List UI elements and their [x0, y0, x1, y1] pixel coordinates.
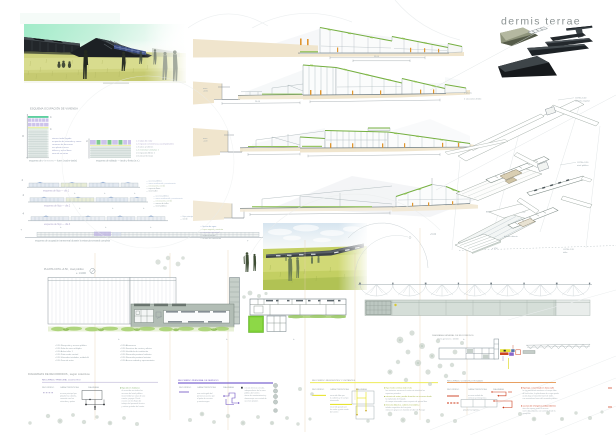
svg-text:norte del conjunto, con contro: norte del conjunto, con control desde la [523, 410, 557, 413]
svg-text:■ flujo medio continuo todo el: ■ flujo medio continuo todo el día [384, 387, 413, 390]
svg-text:O: O [22, 134, 24, 138]
svg-text:la cubierta y el campo: la cubierta y el campo [330, 397, 348, 400]
svg-text:e 1/50: e 1/50 [492, 248, 498, 250]
svg-text:planta general e. 1/2000: planta general e. 1/2000 [437, 338, 459, 341]
svg-text:uso restringido del: uso restringido del [197, 392, 213, 395]
svg-text:área de espera junto al acceso: área de espera junto al acceso [523, 407, 549, 410]
svg-text:■ itinerario didáctico, cubier: ■ itinerario didáctico, cubierta transit… [384, 403, 419, 406]
svg-text:DIAGRAMA: DIAGRAMA [493, 388, 504, 391]
svg-text:e. 1/1000: e. 1/1000 [76, 272, 87, 275]
svg-text:+: + [293, 337, 295, 341]
svg-text:+3.50 Aulas taller 1: +3.50 Aulas taller 1 [55, 350, 74, 353]
svg-text:uso planta tercera: uso planta tercera [52, 146, 69, 149]
svg-text:taller: taller [563, 251, 568, 254]
svg-text:recorrido libre por: recorrido libre por [330, 394, 345, 397]
svg-text:esquema de ocupación transvers: esquema de ocupación transversal durante… [35, 239, 111, 242]
svg-text:zona de servicios: zona de servicios [52, 152, 68, 155]
svg-text:COTA -1.20: COTA -1.20 [563, 248, 575, 251]
svg-text:taludes vegetales del conjunto: taludes vegetales del conjunto [386, 406, 411, 409]
svg-text:■ flujo bajo, concentrado en h: ■ flujo bajo, concentrado en horas valle [521, 387, 554, 390]
svg-text:el recorrido une todos los: el recorrido une todos los [122, 389, 143, 392]
svg-text:s.6 zonas técnicas: s.6 zonas técnicas [136, 155, 153, 158]
svg-text:el campo intermedio como espac: el campo intermedio como espacio de pase… [386, 400, 428, 403]
svg-text:RECORRIDO: RECORRIDO [179, 387, 192, 389]
svg-text:s.5 espacios libres 1: s.5 espacios libres 1 [136, 152, 156, 155]
svg-text:esquema de flujo — día 2: esquema de flujo — día 2 [44, 205, 71, 207]
svg-text:los visitantes recorren el cen: los visitantes recorren el centro sin in… [386, 389, 426, 392]
svg-text:CARACTERÍSTICAS: CARACTERÍSTICAS [197, 386, 216, 389]
svg-text:— muros de contención: — muros de contención [200, 237, 221, 240]
svg-text:RECORRIDO PRINCIPAL COLECTIVO: RECORRIDO PRINCIPAL COLECTIVO [42, 379, 81, 382]
svg-text:CARACTERÍSTICAS: CARACTERÍSTICAS [468, 388, 487, 391]
svg-text:servicio y emergencia: servicio y emergencia [468, 397, 487, 400]
svg-text:PLANTA COTA +3.50 , nivel públ: PLANTA COTA +3.50 , nivel público [44, 268, 84, 271]
svg-text:+: + [463, 337, 465, 341]
svg-text:RECORRIDO RESIDENTES Y VISITAN: RECORRIDO RESIDENTES Y VISITANTES [312, 379, 356, 382]
svg-text:la vía perimetral mantiene el: la vía perimetral mantiene el campo libr… [523, 389, 557, 392]
svg-text:s.3 aulas y talleres: s.3 aulas y talleres [136, 146, 153, 149]
svg-text:RECORRIDO: RECORRIDO [42, 387, 55, 389]
svg-text:+3.50 Recorrido peatonal cub: +3.50 Recorrido peatonal cubierto [120, 353, 152, 356]
svg-text:DIAGRAMA: DIAGRAMA [356, 388, 367, 391]
svg-text:cubierta vegetal: cubierta vegetal [575, 100, 590, 103]
svg-text:COTA +3.50: COTA +3.50 [577, 161, 589, 164]
svg-text:+3.50 Servicios de cocina y: +3.50 Servicios de cocina y oficios [120, 347, 152, 350]
svg-text:personal, acceso por: personal, acceso por [197, 395, 215, 398]
svg-text:de vehículos; la plataforma de: de vehículos; la plataforma de carga que… [523, 392, 560, 395]
svg-text:y visitas guiadas del centro: y visitas guiadas del centro [122, 405, 145, 408]
svg-text:RECORRIDO: RECORRIDO [312, 389, 325, 391]
svg-text:independiente de la zona: independiente de la zona [245, 389, 267, 392]
svg-text:38.00: 38.00 [374, 56, 380, 58]
svg-text:COTA +6.00: COTA +6.00 [575, 97, 587, 100]
svg-text:— terreno natural: — terreno natural [200, 234, 216, 237]
svg-text:circuito técnico cerrado,: circuito técnico cerrado, [245, 386, 265, 389]
svg-text:CARACTERÍSTICAS: CARACTERÍSTICAS [330, 388, 349, 391]
svg-text:visitas en grupo con monitor a: visitas en grupo con monitor al taller d… [386, 409, 426, 412]
svg-text:— lámina de agua: — lámina de agua [200, 226, 217, 228]
svg-text:accesos propios: accesos propios [245, 399, 259, 402]
svg-text:1 planta: 1 planta [464, 92, 473, 95]
svg-text:trabajo del personal técnico: trabajo del personal técnico [122, 402, 145, 405]
svg-text:plataforma logística: plataforma logística [463, 408, 480, 411]
svg-text:+3.50 Acceso rodado y aparca: +3.50 Acceso rodado y aparcamiento [120, 359, 155, 362]
svg-text:■ accesos de emergencia indepe: ■ accesos de emergencia independientes [521, 404, 556, 407]
svg-text:almacenaje con control de: almacenaje con control de [245, 397, 267, 400]
svg-text:y montacargas: y montacargas [197, 400, 209, 403]
svg-text:— nivel taller: — nivel taller [146, 190, 158, 193]
svg-text:+3.50 Sala de usos múltiples: +3.50 Sala de usos múltiples [55, 347, 82, 350]
svg-text:esquema de sábado — tarde y fi: esquema de sábado — tarde y fiesta (s.e.… [96, 160, 140, 163]
svg-text:+3.50 Patio verde central: +3.50 Patio verde central [55, 353, 79, 356]
svg-text:viviendas y patios: viviendas y patios [60, 400, 75, 403]
svg-text:DIAGRAMA: DIAGRAMA [88, 386, 99, 389]
svg-text:— capa vegetal y sustrato: — capa vegetal y sustrato [200, 228, 224, 231]
svg-text:nivel público: nivel público [577, 165, 589, 167]
svg-text:común y apoyo. Prevé: común y apoyo. Prevé [122, 397, 141, 400]
svg-text:RECORRIDO PERSONAL DE SERVICIO: RECORRIDO PERSONAL DE SERVICIO [178, 379, 219, 382]
svg-text:acceso principal por: acceso principal por [60, 392, 77, 395]
svg-text:las salas y patio verde: las salas y patio verde [330, 408, 349, 411]
svg-text:esquema de flujo — día 1: esquema de flujo — día 1 [43, 191, 70, 193]
svg-text:+3.50 Zona de estar: +3.50 Zona de estar [55, 359, 74, 362]
svg-text:DIAGRAMAS DE RECORRIDOS , seg: DIAGRAMAS DE RECORRIDOS , según colectiv… [28, 372, 90, 376]
svg-text:recorriendo las salas de uso: recorriendo las salas de uso [122, 394, 146, 397]
svg-text:esquema de flujo — día 3: esquema de flujo — día 3 [44, 224, 71, 226]
svg-text:dermis terrae: dermis terrae [501, 16, 581, 28]
svg-text:+5.00: +5.00 [430, 233, 437, 236]
svg-text:oculta bajo el talud del nivel: oculta bajo el talud del nivel de taller… [523, 394, 554, 397]
svg-text:recorrido guiado por: recorrido guiado por [330, 405, 347, 408]
svg-text:— verde: — verde [180, 219, 188, 221]
svg-text:recepción: recepción [523, 412, 531, 415]
svg-text:RECORRIDO LOGÍSTICO RODADO: RECORRIDO LOGÍSTICO RODADO [447, 379, 483, 382]
svg-text:-1.20: -1.20 [203, 141, 207, 143]
svg-text:+: + [118, 337, 120, 341]
svg-text:DIAGRAMA: DIAGRAMA [223, 386, 234, 389]
svg-text:comunes de descanso: comunes de descanso [52, 144, 74, 146]
svg-text:con maniobras fuera del recorr: con maniobras fuera del recorrido públic… [523, 397, 558, 400]
svg-text:áreas de mantenimiento y: áreas de mantenimiento y [245, 394, 267, 397]
svg-text:— nivel público: — nivel público [153, 206, 167, 208]
svg-text:ocupación de viviendas y zonas: ocupación de viviendas y zonas [52, 141, 81, 143]
svg-text:+3.50 Viviendas tuteladas, m: +3.50 Viviendas tuteladas, módulo A [55, 356, 89, 359]
svg-text:■ estancia de corta y media du: ■ estancia de corta y media duración con… [384, 395, 432, 398]
svg-text:talleres y aulas libres: talleres y aulas libres [52, 149, 71, 152]
svg-text:+3.50 Vestiíbulo de instalac: +3.50 Vestiíbulo de instalación [120, 350, 149, 353]
svg-text:2 secciones límite: 2 secciones límite [464, 98, 482, 101]
svg-text:acceso rodado de: acceso rodado de [468, 394, 483, 397]
svg-text:viernes tarde llegada: viernes tarde llegada [52, 137, 72, 140]
svg-text:+3.50 Recepción y acceso púb: +3.50 Recepción y acceso público [55, 345, 87, 347]
svg-text:s.2 espacio convivencia y a: s.2 espacio convivencia y acompañantes [136, 143, 174, 146]
svg-text:RECORRIDO: RECORRIDO [447, 389, 460, 391]
svg-text:espacios privados: espacios privados [386, 392, 401, 395]
svg-text:del centro: del centro [330, 411, 338, 414]
svg-text:s.4 viviendas tuteladas 1: s.4 viviendas tuteladas 1 [136, 149, 160, 152]
svg-text:pública del centro.: pública del centro. [245, 392, 261, 395]
svg-text:s.1 salas de estar: s.1 salas de estar [136, 140, 153, 143]
svg-text:el patio de servicio: el patio de servicio [197, 397, 213, 400]
svg-text:intermedio: intermedio [330, 399, 339, 402]
svg-text:24.00: 24.00 [255, 101, 261, 103]
svg-text:detalle cubierta: detalle cubierta [504, 235, 518, 238]
svg-text:cruces con los flujos de: cruces con los flujos de [122, 400, 142, 403]
svg-text:DIAGRAMA GENERAL DE RECORRIDOS: DIAGRAMA GENERAL DE RECORRIDOS [432, 334, 474, 337]
svg-text:■ flujo alto en mañanas: ■ flujo alto en mañanas [120, 387, 140, 390]
svg-text:— estructura principal: — estructura principal [200, 231, 220, 234]
svg-text:+3.50 Recorrido peatonal ext: +3.50 Recorrido peatonal exterior [120, 356, 151, 359]
svg-text:+0.00: +0.00 [203, 91, 208, 93]
svg-text:esquema de v i e r n e s — lun: esquema de v i e r n e s — lunes (noche-… [29, 160, 77, 163]
svg-text:plataforma cubierta,: plataforma cubierta, [60, 395, 77, 398]
svg-text:+3.50 Almacenes: +3.50 Almacenes [120, 344, 136, 347]
svg-text:CARACTERÍSTICAS: CARACTERÍSTICAS [60, 386, 79, 389]
svg-text:+: + [226, 337, 228, 341]
